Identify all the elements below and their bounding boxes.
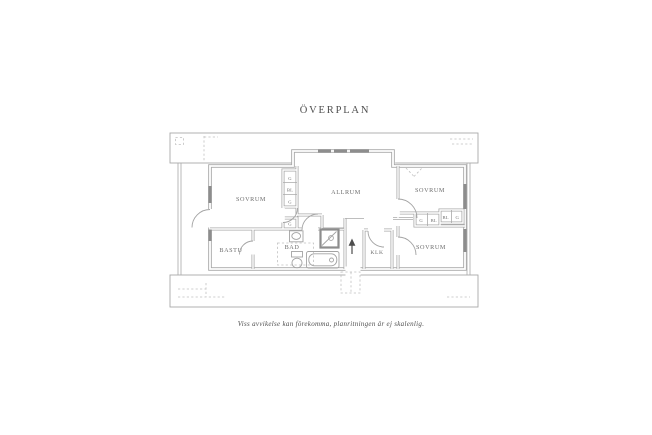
room-label-klk: KLK <box>370 250 383 256</box>
toilet <box>292 252 303 268</box>
room-label-allrum: ALLRUM <box>331 189 361 196</box>
closet-label-right-bl2: BL <box>443 215 449 220</box>
floorplan-drawing: SOVRUM ALLRUM SOVRUM SOVRUM BASTU BAD KL… <box>0 0 652 435</box>
bathtub <box>307 252 340 269</box>
closet-labels: G BL G G G BL BL G <box>287 176 460 227</box>
room-label-sovrum-bottom-right: SOVRUM <box>416 244 446 251</box>
room-label-sovrum-left: SOVRUM <box>236 196 266 203</box>
room-label-bastu: BASTU <box>219 247 242 254</box>
closet-label-right-g2: G <box>456 215 460 220</box>
closet-label-g1: G <box>288 176 292 181</box>
roof-edge-lines <box>178 163 470 275</box>
room-label-sovrum-top-right: SOVRUM <box>415 187 445 194</box>
closet-label-g2: G <box>288 199 292 204</box>
closet-label-hall-g: G <box>288 222 292 227</box>
plan-caption: Viss avvikelse kan förekomma, planritnin… <box>10 320 652 328</box>
shower <box>321 230 339 248</box>
room-label-bad: BAD <box>285 244 300 251</box>
roof-band-bottom <box>170 275 478 307</box>
sink <box>290 231 304 242</box>
closet-label-bl1: BL <box>287 188 293 193</box>
floorplan-page: ÖVERPLAN <box>0 0 652 435</box>
interior-walls <box>210 166 465 269</box>
closet-label-right-g1: G <box>419 218 423 223</box>
closet-label-right-bl1: BL <box>431 218 437 223</box>
